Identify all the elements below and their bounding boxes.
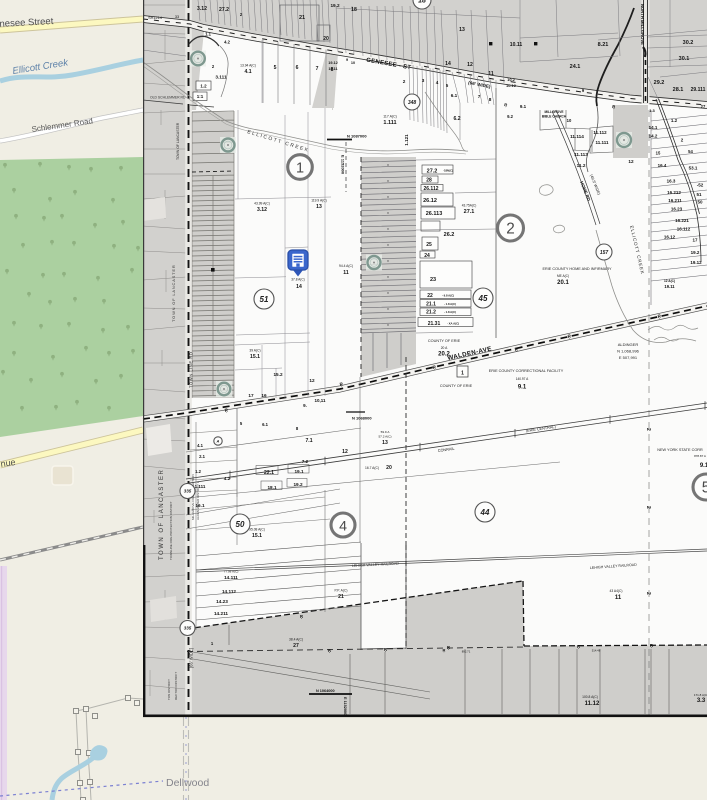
svg-text:22.1: 22.1	[264, 470, 274, 476]
svg-text:95.08 A(C): 95.08 A(C)	[249, 528, 265, 532]
svg-text:892.71: 892.71	[462, 650, 471, 654]
svg-text:9.1: 9.1	[518, 385, 527, 391]
svg-text:BIBLE CHURCH: BIBLE CHURCH	[542, 115, 567, 119]
svg-text:12: 12	[628, 159, 634, 164]
svg-text:11: 11	[343, 270, 349, 276]
svg-text:-52: -52	[697, 183, 704, 188]
svg-text:20.1: 20.1	[557, 280, 569, 286]
svg-text:27.1: 27.1	[464, 209, 475, 215]
svg-text:2: 2	[506, 221, 515, 238]
svg-text:19.1: 19.1	[294, 469, 304, 474]
svg-text:21.31: 21.31	[428, 321, 441, 327]
svg-text:6.1: 6.1	[451, 93, 458, 98]
svg-text:4.2: 4.2	[224, 476, 231, 481]
svg-text:8.21: 8.21	[598, 42, 609, 48]
svg-text:16.221: 16.221	[675, 218, 689, 223]
svg-text:8: 8	[331, 67, 334, 73]
svg-text:-18N(C): -18N(C)	[443, 169, 453, 173]
svg-text:10: 10	[351, 61, 355, 65]
svg-text:26.112: 26.112	[423, 186, 438, 192]
svg-text:13: 13	[382, 440, 388, 446]
svg-text:7: 7	[316, 66, 319, 72]
svg-text:18.1: 18.1	[267, 485, 277, 490]
svg-text:21.1: 21.1	[426, 302, 436, 308]
svg-text:43 A4(C): 43 A4(C)	[609, 589, 622, 593]
svg-text:4.1: 4.1	[197, 443, 203, 448]
svg-text:10.11: 10.11	[510, 42, 523, 48]
svg-text:- 1.8 A(C): - 1.8 A(C)	[444, 302, 456, 306]
svg-text:27: 27	[701, 104, 706, 109]
svg-text:335: 335	[184, 489, 192, 494]
svg-text:TOWN OF LANCASTER: TOWN OF LANCASTER	[171, 264, 176, 322]
svg-text:6: 6	[296, 65, 299, 71]
svg-text:50: 50	[697, 200, 703, 205]
svg-text:TON DISTRICT: TON DISTRICT	[167, 679, 171, 700]
svg-text:14: 14	[296, 284, 302, 290]
svg-text:28.1: 28.1	[673, 87, 684, 93]
svg-text:1.1: 1.1	[205, 32, 211, 37]
svg-text:9.1: 9.1	[700, 463, 707, 469]
svg-text:N 1068000: N 1068000	[352, 416, 372, 421]
svg-text:E 507,991: E 507,991	[619, 355, 638, 360]
svg-text:140.97 A: 140.97 A	[516, 377, 529, 381]
svg-text:NORTH MILLGROVE: NORTH MILLGROVE	[640, 4, 645, 45]
svg-text:26.2: 26.2	[444, 232, 455, 238]
svg-text:26.12: 26.12	[423, 198, 437, 204]
svg-text:30.2: 30.2	[683, 40, 694, 46]
svg-text:39 A(C): 39 A(C)	[249, 349, 260, 353]
svg-text:14.23: 14.23	[216, 599, 228, 604]
svg-text:2: 2	[645, 428, 651, 431]
svg-text:19.2: 19.2	[330, 3, 340, 8]
svg-text:N 1087000: N 1087000	[347, 134, 367, 139]
svg-text:1: 1	[461, 371, 464, 377]
svg-text:nue: nue	[0, 457, 16, 469]
svg-text:14.112: 14.112	[222, 589, 236, 594]
svg-text:57.2 A(C): 57.2 A(C)	[378, 435, 391, 439]
svg-text:Ŗ: Ŗ	[443, 648, 446, 653]
svg-text:- XA A(C): - XA A(C)	[447, 322, 459, 326]
svg-text:53.1: 53.1	[689, 166, 698, 171]
svg-text:Ŗ: Ŗ	[577, 644, 580, 649]
svg-text:Ŗ: Ŗ	[384, 647, 387, 652]
svg-text:ERIE COUNTY CORRECTIONAL FA: ERIE COUNTY CORRECTIONAL FACILITY	[489, 369, 564, 373]
svg-text:25: 25	[426, 242, 432, 248]
svg-text:27: 27	[293, 643, 299, 649]
svg-text:51: 51	[260, 295, 269, 304]
svg-text:20: 20	[386, 465, 392, 471]
svg-text:6.1: 6.1	[262, 422, 268, 427]
svg-text:1:1: 1:1	[197, 94, 204, 99]
svg-text:SH1214: SH1214	[148, 16, 162, 20]
svg-text:ALDINGER: ALDINGER	[618, 342, 639, 347]
svg-text:2: 2	[403, 79, 406, 84]
svg-text:20 A: 20 A	[441, 346, 448, 350]
svg-text:1.111: 1.111	[383, 120, 396, 126]
svg-text:24: 24	[424, 253, 430, 259]
svg-text:6.2: 6.2	[453, 116, 460, 122]
svg-text:12 A(C): 12 A(C)	[664, 279, 675, 283]
svg-text:MILLGROVE: MILLGROVE	[545, 110, 564, 114]
svg-text:16.212: 16.212	[667, 190, 681, 195]
svg-text:33: 33	[175, 15, 179, 19]
svg-text:14.111: 14.111	[224, 575, 238, 580]
svg-text:Ŗ: Ŗ	[300, 614, 303, 619]
svg-text:27.2: 27.2	[219, 7, 229, 13]
svg-text:12: 12	[467, 62, 473, 68]
svg-text:43.99 A(C): 43.99 A(C)	[254, 202, 270, 206]
svg-text:45: 45	[478, 294, 488, 303]
svg-text:14.211: 14.211	[214, 611, 228, 616]
svg-text:54: 54	[688, 149, 693, 154]
svg-text:37.8 A(C): 37.8 A(C)	[291, 278, 304, 282]
svg-text:1.2: 1.2	[200, 84, 207, 89]
svg-text:10,11: 10,11	[314, 398, 326, 403]
svg-text:Dellwood: Dellwood	[166, 777, 209, 789]
svg-text:19.11: 19.11	[664, 284, 675, 289]
svg-text:18: 18	[351, 7, 357, 13]
svg-text:157: 157	[600, 250, 609, 256]
svg-text:3.3: 3.3	[697, 698, 706, 704]
svg-text:- 9.8 A(C): - 9.8 A(C)	[442, 294, 454, 298]
svg-text:119.9 A(C): 119.9 A(C)	[311, 199, 327, 203]
svg-text:RECTION DISTRICT: RECTION DISTRICT	[174, 672, 178, 700]
svg-text:13: 13	[459, 27, 465, 33]
svg-text:28: 28	[426, 178, 432, 184]
svg-text:20.2: 20.2	[438, 352, 450, 358]
svg-text:10: 10	[567, 118, 572, 123]
svg-text:12: 12	[309, 378, 315, 383]
svg-text:11.114: 11.114	[570, 134, 584, 139]
svg-text:27.2: 27.2	[427, 169, 438, 175]
svg-text:18: 18	[418, 0, 426, 5]
svg-text:1.2: 1.2	[195, 469, 201, 474]
svg-text:19.12: 19.12	[690, 260, 702, 265]
svg-text:11.2: 11.2	[577, 163, 586, 168]
svg-text:15.1: 15.1	[252, 533, 262, 539]
svg-text:1.2: 1.2	[671, 118, 678, 123]
svg-text:11.112: 11.112	[593, 130, 607, 135]
svg-text:COUNTY OF ERIE: COUNTY OF ERIE	[440, 384, 473, 388]
svg-text:21.2: 21.2	[426, 310, 436, 316]
svg-text:N 1,068,996: N 1,068,996	[617, 349, 640, 354]
svg-text:7.1: 7.1	[305, 438, 312, 444]
svg-text:ERIE COUNTY HOME AND INFIR: ERIE COUNTY HOME AND INFIRMARY	[542, 267, 612, 271]
svg-text:22: 22	[427, 293, 433, 299]
svg-text:15.1: 15.1	[250, 354, 260, 360]
svg-text:1.3: 1.3	[649, 108, 655, 113]
svg-text:43.75A(C): 43.75A(C)	[462, 204, 477, 208]
svg-text:16: 16	[261, 393, 267, 398]
svg-text:2.1: 2.1	[199, 454, 205, 459]
svg-text:38.4 A(C): 38.4 A(C)	[289, 638, 303, 642]
svg-text:7: 7	[478, 94, 481, 99]
svg-text:2: 2	[645, 506, 651, 509]
svg-text:TOWNLINE FIRE PROTECTION DISTR: TOWNLINE FIRE PROTECTION DISTRICT	[169, 501, 173, 560]
svg-text:21: 21	[338, 594, 344, 600]
svg-text:878.87 A: 878.87 A	[694, 454, 706, 458]
svg-text:29.2: 29.2	[654, 80, 665, 86]
svg-text:8: 8	[489, 97, 492, 102]
svg-text:14.2: 14.2	[649, 134, 658, 139]
svg-text:44: 44	[480, 508, 490, 517]
svg-text:5: 5	[274, 65, 277, 71]
svg-text:3.111: 3.111	[215, 75, 227, 80]
svg-text:19.12: 19.12	[328, 61, 338, 65]
svg-text:ALDEN WATER DISTRICT 1: ALDEN WATER DISTRICT 1	[196, 481, 200, 520]
svg-text:E 1152000: E 1152000	[343, 697, 347, 715]
svg-text:12: 12	[342, 449, 348, 455]
svg-text:4: 4	[339, 518, 347, 534]
svg-text:16.4: 16.4	[658, 163, 667, 168]
svg-text:16.7 A(C): 16.7 A(C)	[365, 466, 379, 470]
svg-text:11: 11	[615, 595, 622, 601]
svg-text:94.4 A(C): 94.4 A(C)	[339, 264, 353, 268]
svg-text:16.3: 16.3	[667, 179, 676, 184]
svg-text:11: 11	[488, 71, 494, 77]
svg-text:Ŗ: Ŗ	[328, 648, 331, 653]
svg-text:51: 51	[696, 192, 702, 197]
svg-text:TOWN OF LANCASTER: TOWN OF LANCASTER	[159, 469, 165, 560]
svg-text:50: 50	[236, 520, 245, 529]
svg-text:514.48: 514.48	[592, 649, 601, 653]
svg-text:20: 20	[323, 36, 329, 42]
svg-text:TOWN LINE RD: TOWN LINE RD	[189, 352, 194, 388]
svg-text:3.12: 3.12	[197, 6, 207, 12]
svg-text:3: 3	[422, 78, 425, 83]
svg-text:NEW YORK STATE CORR: NEW YORK STATE CORR	[657, 448, 703, 452]
svg-text:COUNTY OF ERIE: COUNTY OF ERIE	[428, 339, 461, 343]
svg-text:17: 17	[692, 238, 698, 243]
svg-text:30.1: 30.1	[679, 56, 690, 62]
svg-text:171.8 A(C): 171.8 A(C)	[694, 693, 707, 697]
svg-text:14.1: 14.1	[649, 125, 658, 130]
svg-text:9.1: 9.1	[520, 104, 527, 109]
svg-text:335: 335	[184, 626, 192, 631]
svg-text:21: 21	[299, 15, 305, 21]
svg-text:3.12: 3.12	[257, 207, 267, 213]
svg-text:10.12: 10.12	[506, 83, 517, 88]
svg-text:77.98 A(C): 77.98 A(C)	[224, 570, 239, 574]
svg-text:100.8 A(C): 100.8 A(C)	[582, 695, 598, 699]
svg-text:10.2: 10.2	[507, 77, 516, 82]
svg-text:13.94 A(C): 13.94 A(C)	[240, 64, 256, 68]
svg-text:9: 9	[346, 58, 348, 62]
svg-text:N 1064000: N 1064000	[316, 689, 335, 693]
svg-text:OLD SCHLEMMER RD: OLD SCHLEMMER RD	[150, 96, 186, 100]
svg-text:4: 4	[436, 80, 439, 85]
svg-text:ME A(C): ME A(C)	[557, 274, 569, 278]
svg-text:26.113: 26.113	[426, 211, 443, 217]
svg-text:1.121: 1.121	[404, 134, 409, 146]
svg-text:Ŗ: Ŗ	[650, 643, 653, 648]
svg-text:348: 348	[408, 100, 417, 106]
svg-text:16.211: 16.211	[668, 198, 682, 203]
svg-text:15.2: 15.2	[273, 372, 283, 377]
svg-text:59.9 A: 59.9 A	[381, 430, 391, 434]
svg-text:24.1: 24.1	[570, 64, 581, 70]
svg-text:11.113: 11.113	[574, 152, 588, 157]
svg-text:4.1: 4.1	[244, 69, 251, 75]
svg-text:13: 13	[316, 204, 322, 210]
svg-text:E 1152000: E 1152000	[341, 155, 346, 175]
svg-text:16.12: 16.12	[664, 235, 676, 240]
svg-text:19.2: 19.2	[691, 250, 700, 255]
svg-text:16.112: 16.112	[677, 227, 691, 232]
svg-text:16.23: 16.23	[671, 207, 683, 212]
svg-text:5: 5	[702, 480, 707, 497]
svg-text:1: 1	[296, 160, 304, 176]
svg-text:Ŗ: Ŗ	[447, 645, 450, 650]
svg-text:9.: 9.	[303, 403, 307, 408]
svg-text:11.111: 11.111	[595, 140, 609, 145]
svg-text:29.111: 29.111	[691, 87, 706, 93]
svg-text:- 1.8 A(C): - 1.8 A(C)	[444, 310, 456, 314]
svg-text:117 A(C): 117 A(C)	[383, 115, 397, 119]
svg-text:15: 15	[656, 151, 661, 156]
svg-text:14: 14	[445, 61, 451, 67]
svg-text:P.P. A(C): P.P. A(C)	[335, 589, 348, 593]
svg-text:7.2: 7.2	[302, 459, 309, 464]
svg-text:A: A	[216, 438, 220, 443]
svg-text:17: 17	[248, 393, 254, 398]
svg-text:TOWN OF LANCASTER: TOWN OF LANCASTER	[176, 122, 180, 160]
svg-text:9.2: 9.2	[507, 114, 513, 119]
svg-text:11.12: 11.12	[585, 701, 600, 707]
svg-text:4.2: 4.2	[224, 40, 230, 45]
svg-text:19.2: 19.2	[293, 482, 303, 487]
svg-text:23: 23	[430, 277, 436, 283]
svg-text:2: 2	[645, 592, 651, 595]
